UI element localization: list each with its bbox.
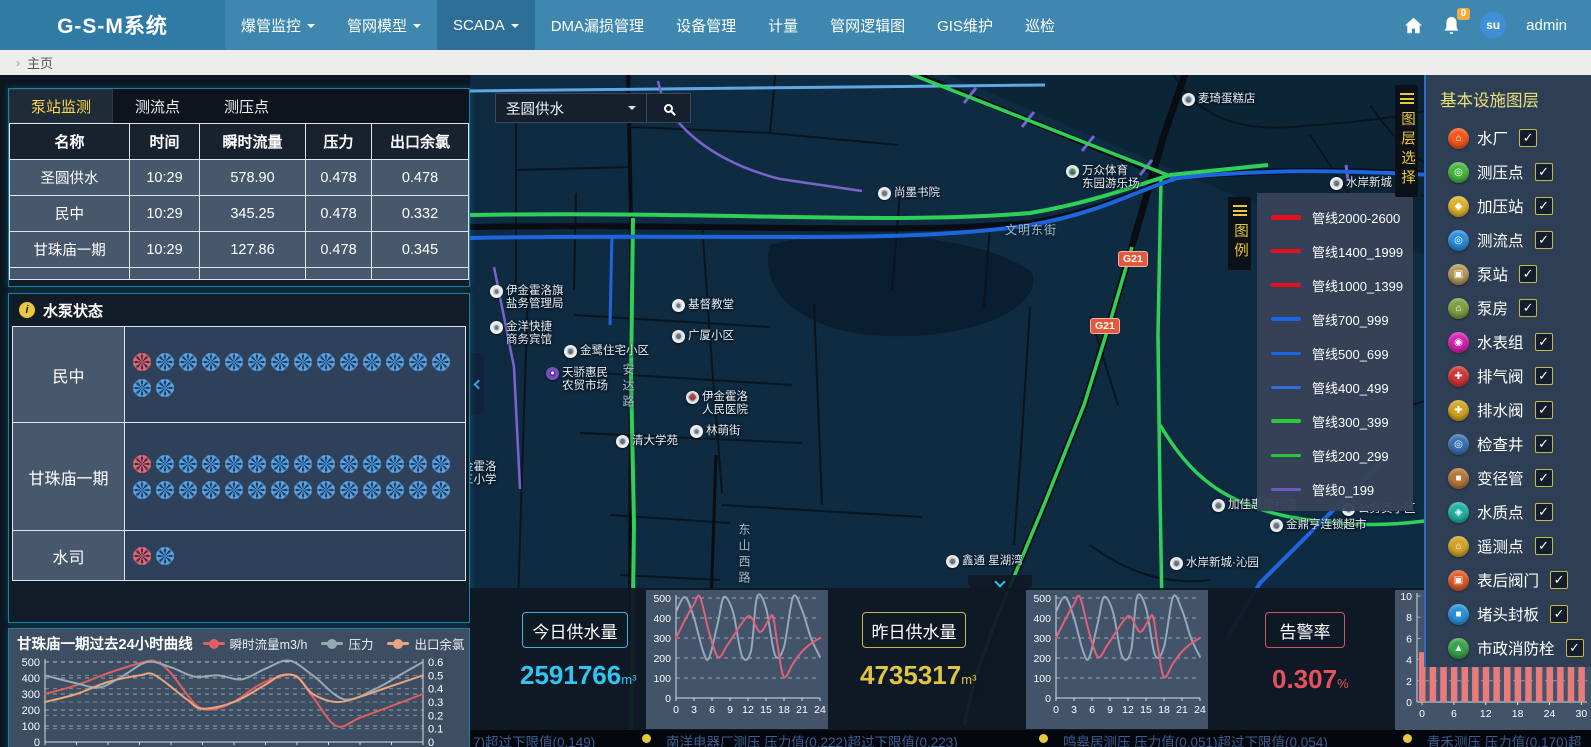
ticker-item: 鸣皋居测压 压力值(0.051)超过下限值(0.054) [1063, 731, 1328, 747]
pump-running-icon [386, 481, 404, 499]
svg-text:0.6: 0.6 [428, 657, 443, 669]
svg-text:21: 21 [1176, 704, 1188, 716]
column-header: 压力 [306, 124, 372, 160]
cell-chlorine: 0.478 [372, 160, 469, 196]
svg-text:18: 18 [1158, 704, 1170, 716]
pump-running-icon [156, 353, 174, 371]
cell-chlorine: 0.345 [372, 232, 469, 268]
pipeline-legend-panel: 管线2000-2600管线1400_1999管线1000_1399管线700_9… [1257, 193, 1413, 511]
svg-text:100: 100 [653, 673, 671, 685]
layer-item-13[interactable]: ▣表后阀门✓ [1426, 563, 1591, 597]
pump-running-icon [225, 481, 243, 499]
cell-name: 民中 [10, 196, 130, 232]
supply-summary-bar: 今日供水量 2591766m³ 010020030040050003691215… [470, 588, 1591, 730]
svg-text:30: 30 [1576, 708, 1588, 720]
app-logo[interactable]: G-S-M系统 [0, 0, 225, 50]
column-header: 出口余氯 [372, 124, 469, 160]
pump-running-icon [133, 481, 151, 499]
svg-text:0: 0 [428, 737, 434, 747]
tab-2[interactable]: 测压点 [202, 89, 291, 123]
layer-item-6[interactable]: ◉水表组✓ [1426, 325, 1591, 359]
nav-item-2[interactable]: SCADA [437, 0, 535, 50]
curve-legend-label: 压力 [348, 634, 373, 653]
layer-label: 排水阀 [1477, 399, 1524, 421]
cell-name: 甘珠庙一期 [10, 232, 130, 268]
svg-text:0: 0 [665, 693, 671, 705]
layer-checkbox[interactable]: ✓ [1535, 435, 1553, 453]
pump-alarm-icon [133, 353, 151, 371]
cell-time: 10:29 [130, 232, 200, 268]
breadcrumb: › 主页 [0, 50, 1591, 75]
pump-station-name: 甘珠庙一期 [13, 423, 125, 531]
legend-item: 管线2000-2600 [1271, 200, 1413, 234]
layer-checkbox[interactable]: ✓ [1535, 231, 1553, 249]
ticker-item: 7)超过下限值(0.149) [473, 731, 595, 747]
layer-checkbox[interactable]: ✓ [1550, 571, 1568, 589]
nav-item-7[interactable]: GIS维护 [921, 0, 1009, 50]
layer-checkbox[interactable]: ✓ [1535, 537, 1553, 555]
cell-empty [306, 268, 372, 280]
nav-item-label: SCADA [453, 17, 505, 34]
pump-running-icon [363, 455, 381, 473]
search-icon [664, 104, 673, 113]
pump-running-icon [156, 379, 174, 397]
layer-item-11[interactable]: ◈水质点✓ [1426, 495, 1591, 529]
collapse-left-panel-button[interactable] [470, 353, 484, 415]
cell-empty [130, 268, 200, 280]
legend-label: 管线0_199 [1312, 480, 1374, 499]
layer-toggle-label: 图层选择 [1399, 111, 1414, 189]
svg-text:3: 3 [691, 704, 697, 716]
pump-station-row: 民中 [13, 327, 466, 423]
pump-status-header: i 水泵状态 [9, 294, 469, 326]
pump-running-icon [225, 455, 243, 473]
notifications-button[interactable]: 0 [1443, 16, 1460, 35]
pump-running-icon [409, 455, 427, 473]
gsm-dashboard: G-S-M系统 爆管监控管网模型SCADADMA漏损管理设备管理计量管网逻辑图G… [0, 0, 1591, 747]
legend-label: 管线300_399 [1312, 412, 1389, 431]
pump-running-icon [156, 481, 174, 499]
chevron-left-icon [473, 379, 483, 389]
legend-swatch [1271, 249, 1301, 253]
chevron-down-icon [994, 576, 1005, 587]
pump-running-icon [363, 353, 381, 371]
svg-text:0.5: 0.5 [428, 670, 443, 682]
svg-text:21: 21 [796, 704, 808, 716]
search-select-value: 圣圆供水 [506, 98, 564, 119]
history-curve-chart: 010020030040050000.10.20.30.40.50.6 [9, 656, 469, 747]
svg-text:6: 6 [1406, 633, 1412, 645]
pump-running-icon [271, 481, 289, 499]
layer-checkbox[interactable]: ✓ [1535, 197, 1553, 215]
svg-text:15: 15 [1140, 704, 1152, 716]
today-supply-button[interactable]: 今日供水量 [522, 612, 628, 648]
svg-text:300: 300 [1033, 633, 1051, 645]
pump-running-icon [179, 455, 197, 473]
breadcrumb-arrow-icon: › [16, 56, 20, 70]
ticker-item: 青禾测压 压力值(0.170)超 [1427, 731, 1582, 747]
pump-running-icon [409, 481, 427, 499]
layer-checkbox[interactable]: ✓ [1566, 639, 1584, 657]
legend-label: 管线700_999 [1312, 310, 1389, 329]
layer-item-3[interactable]: ◎测流点✓ [1426, 223, 1591, 257]
caret-down-icon [511, 24, 519, 32]
pump-running-icon [386, 455, 404, 473]
alarm-rate-button[interactable]: 告警率 [1265, 612, 1345, 648]
pump-running-icon [294, 455, 312, 473]
tab-1[interactable]: 测流点 [113, 89, 202, 123]
svg-text:200: 200 [22, 705, 40, 717]
pump-running-icon [340, 353, 358, 371]
pump-station-row: 甘珠庙一期 [13, 423, 466, 531]
layer-label: 表后阀门 [1477, 569, 1539, 591]
svg-text:0.4: 0.4 [428, 684, 443, 696]
layer-label: 加压站 [1477, 195, 1524, 217]
layer-icon: ■ [1448, 468, 1469, 489]
layer-checkbox[interactable]: ✓ [1535, 333, 1553, 351]
pump-running-icon [340, 455, 358, 473]
layer-item-2[interactable]: ◆加压站✓ [1426, 189, 1591, 223]
avatar[interactable]: su [1480, 12, 1506, 38]
layer-icon: ◎ [1448, 162, 1469, 183]
layer-item-4[interactable]: ▣泵站✓ [1426, 257, 1591, 291]
today-supply-chart: 010020030040050003691215182124 [646, 590, 828, 729]
pump-running-icon [409, 353, 427, 371]
svg-text:24: 24 [1194, 704, 1206, 716]
caret-down-icon [307, 24, 315, 32]
layer-item-0[interactable]: ⌂水厂✓ [1426, 121, 1591, 155]
svg-text:400: 400 [653, 613, 671, 625]
svg-text:12: 12 [1122, 704, 1134, 716]
pump-fans [133, 455, 457, 499]
svg-text:0: 0 [1045, 693, 1051, 705]
layer-icon: ⌂ [1448, 128, 1469, 149]
cell-empty [10, 268, 130, 280]
column-header: 瞬时流量 [200, 124, 306, 160]
nav-item-8[interactable]: 巡检 [1009, 0, 1071, 50]
pump-fans-cell [125, 531, 466, 581]
curve-legend-marker [387, 642, 409, 645]
svg-text:6: 6 [1089, 704, 1095, 716]
legend-toggle-label: 图例 [1232, 223, 1247, 262]
svg-text:12: 12 [742, 704, 754, 716]
layer-label: 市政消防栓 [1477, 637, 1555, 659]
legend-swatch [1271, 352, 1301, 355]
legend-swatch [1271, 419, 1301, 423]
svg-text:300: 300 [653, 633, 671, 645]
svg-text:4: 4 [1406, 655, 1412, 667]
layer-label: 测流点 [1477, 229, 1524, 251]
svg-text:500: 500 [1033, 593, 1051, 605]
svg-text:0: 0 [673, 704, 679, 716]
layer-icon: ◈ [1448, 502, 1469, 523]
svg-text:18: 18 [778, 704, 790, 716]
alarm-rate-value: 0.307% [1272, 664, 1349, 695]
legend-item: 管线1000_1399 [1271, 268, 1413, 302]
ticker-dot-icon [1403, 734, 1412, 743]
layer-item-10[interactable]: ■变径管✓ [1426, 461, 1591, 495]
main-menu: 爆管监控管网模型SCADADMA漏损管理设备管理计量管网逻辑图GIS维护巡检 [225, 0, 1071, 50]
layer-item-14[interactable]: ■堵头封板✓ [1426, 597, 1591, 631]
svg-text:2: 2 [1406, 676, 1412, 688]
pump-running-icon [294, 481, 312, 499]
layer-item-8[interactable]: ✚排水阀✓ [1426, 393, 1591, 427]
legend-item: 管线500_699 [1271, 336, 1413, 370]
nav-item-label: 巡检 [1025, 15, 1055, 36]
svg-text:400: 400 [22, 673, 40, 685]
layer-label: 水质点 [1477, 501, 1524, 523]
monitor-tabs: 泵站监测测流点测压点 [9, 89, 469, 123]
menu-icon [1400, 93, 1414, 104]
curve-legend-label: 出口余氯 [414, 634, 464, 653]
svg-text:0.3: 0.3 [428, 697, 443, 709]
ticker-item: 南洋电器厂测压 压力值(0.222)超过下限值(0.223) [666, 731, 958, 747]
search-station-select[interactable]: 圣圆供水 [495, 93, 647, 123]
legend-label: 管线1400_1999 [1312, 242, 1403, 261]
svg-text:100: 100 [22, 721, 40, 733]
layer-label: 堵头封板 [1477, 603, 1539, 625]
svg-text:0: 0 [1406, 697, 1412, 709]
curve-legend-label: 瞬时流量m3/h [230, 634, 308, 653]
layer-checkbox[interactable]: ✓ [1519, 265, 1537, 283]
pump-running-icon [248, 455, 266, 473]
nav-item-0[interactable]: 爆管监控 [225, 0, 331, 50]
pump-running-icon [432, 353, 450, 371]
layer-checkbox[interactable]: ✓ [1550, 605, 1568, 623]
layer-icon: ◉ [1448, 332, 1469, 353]
svg-text:8: 8 [1406, 612, 1412, 624]
pump-running-icon [225, 353, 243, 371]
layer-icon: ⌂ [1448, 536, 1469, 557]
svg-text:9: 9 [727, 704, 733, 716]
legend-swatch [1271, 488, 1301, 491]
curve-legend-item: 压力 [321, 634, 373, 653]
layer-icon: ■ [1448, 604, 1469, 625]
layer-label: 泵房 [1477, 297, 1508, 319]
svg-text:12: 12 [1480, 708, 1492, 720]
layer-select-toggle[interactable]: 图层选择 [1395, 85, 1418, 197]
legend-label: 管线400_499 [1312, 378, 1389, 397]
layer-label: 测压点 [1477, 161, 1524, 183]
pump-running-icon [248, 353, 266, 371]
layer-checkbox[interactable]: ✓ [1519, 299, 1537, 317]
pump-station-name: 民中 [13, 327, 125, 423]
nav-item-label: 计量 [768, 15, 798, 36]
legend-label: 管线2000-2600 [1312, 208, 1400, 227]
layer-item-15[interactable]: ▲市政消防栓✓ [1426, 631, 1591, 665]
svg-text:300: 300 [22, 689, 40, 701]
history-curve-panel: 甘珠庙一期过去24小时曲线 瞬时流量m3/h压力出口余氯 01002003004… [8, 628, 470, 747]
base-layers-title: 基本设施图层 [1426, 75, 1591, 121]
curve-legend-item: 瞬时流量m3/h [203, 634, 308, 653]
pump-alarm-icon [133, 547, 151, 565]
layer-item-9[interactable]: ◎检查井✓ [1426, 427, 1591, 461]
pump-status-panel: i 水泵状态 民中甘珠庙一期水司 [8, 293, 470, 623]
layer-label: 水表组 [1477, 331, 1524, 353]
pump-running-icon [202, 353, 220, 371]
nav-right: 0 su admin [1404, 0, 1591, 50]
info-icon: i [19, 302, 35, 318]
layer-label: 遥测点 [1477, 535, 1524, 557]
pump-running-icon [340, 481, 358, 499]
history-curve-legend: 瞬时流量m3/h压力出口余氯 [203, 634, 465, 653]
nav-item-label: 爆管监控 [241, 15, 301, 36]
pump-running-icon [363, 481, 381, 499]
pump-running-icon [179, 353, 197, 371]
legend-swatch [1271, 317, 1301, 321]
layer-checkbox[interactable]: ✓ [1519, 129, 1537, 147]
column-header: 名称 [10, 124, 130, 160]
pump-running-icon [202, 455, 220, 473]
ticker-dot-icon [1039, 734, 1048, 743]
svg-text:10: 10 [1400, 591, 1412, 603]
svg-text:200: 200 [653, 653, 671, 665]
pump-running-icon [432, 455, 450, 473]
pump-status-title: 水泵状态 [43, 300, 103, 321]
legend-label: 管线500_699 [1312, 344, 1389, 363]
layer-icon: ⌂ [1448, 298, 1469, 319]
nav-item-3[interactable]: DMA漏损管理 [535, 0, 660, 50]
breadcrumb-page[interactable]: 主页 [27, 53, 53, 72]
layer-checkbox[interactable]: ✓ [1535, 469, 1553, 487]
layer-checkbox[interactable]: ✓ [1535, 401, 1553, 419]
legend-swatch [1271, 215, 1301, 220]
table-row[interactable]: 甘珠庙一期10:29127.860.4780.345 [10, 232, 469, 268]
table-row[interactable]: 圣圆供水10:29578.900.4780.478 [10, 160, 469, 196]
cell-pressure: 0.478 [306, 232, 372, 268]
home-button[interactable] [1404, 17, 1423, 34]
layer-item-5[interactable]: ⌂泵房✓ [1426, 291, 1591, 325]
cell-empty [372, 268, 469, 280]
layer-label: 水厂 [1477, 127, 1508, 149]
legend-item: 管线300_399 [1271, 404, 1413, 438]
alarm-ticker: 7)超过下限值(0.149)南洋电器厂测压 压力值(0.222)超过下限值(0.… [470, 730, 1591, 747]
layer-item-1[interactable]: ◎测压点✓ [1426, 155, 1591, 189]
table-row[interactable]: 民中10:29345.250.4780.332 [10, 196, 469, 232]
cell-flow: 127.86 [200, 232, 306, 268]
cell-chlorine: 0.332 [372, 196, 469, 232]
layer-icon: ◎ [1448, 230, 1469, 251]
legend-swatch [1271, 386, 1301, 389]
base-layers-list: ⌂水厂✓◎测压点✓◆加压站✓◎测流点✓▣泵站✓⌂泵房✓◉水表组✓✚排气阀✓✚排水… [1426, 121, 1591, 665]
pump-running-icon [271, 455, 289, 473]
curve-legend-marker [321, 642, 343, 645]
svg-text:500: 500 [653, 593, 671, 605]
cell-flow: 578.90 [200, 160, 306, 196]
layer-checkbox[interactable]: ✓ [1535, 163, 1553, 181]
nav-item-label: GIS维护 [937, 15, 993, 36]
nav-item-label: DMA漏损管理 [551, 15, 644, 36]
pump-status-table: 民中甘珠庙一期水司 [12, 326, 466, 581]
layer-icon: ✚ [1448, 400, 1469, 421]
pump-fans-cell [125, 327, 466, 423]
nav-item-5[interactable]: 计量 [752, 0, 814, 50]
curve-legend-marker [203, 642, 225, 645]
svg-text:9: 9 [1107, 704, 1113, 716]
cell-pressure: 0.478 [306, 160, 372, 196]
layer-icon: ▲ [1448, 638, 1469, 659]
svg-text:0.2: 0.2 [428, 710, 443, 722]
pump-running-icon [317, 455, 335, 473]
cell-flow: 345.25 [200, 196, 306, 232]
pump-fans-cell [125, 423, 466, 531]
yesterday-supply-chart: 010020030040050003691215182124 [1026, 590, 1208, 729]
pump-station-name: 水司 [13, 531, 125, 581]
tab-0[interactable]: 泵站监测 [9, 89, 113, 123]
legend-item: 管线700_999 [1271, 302, 1413, 336]
monitor-table: 名称时间瞬时流量压力出口余氯 圣圆供水10:29578.900.4780.478… [9, 123, 469, 280]
svg-text:0.1: 0.1 [428, 724, 443, 736]
pump-fans [133, 547, 457, 565]
pump-running-icon [386, 353, 404, 371]
legend-item: 管线1400_1999 [1271, 234, 1413, 268]
layer-icon: ▣ [1448, 570, 1469, 591]
layer-label: 泵站 [1477, 263, 1508, 285]
yesterday-supply-value: 4735317m³ [860, 660, 976, 691]
pump-running-icon [202, 481, 220, 499]
legend-item: 管线200_299 [1271, 438, 1413, 472]
nav-item-6[interactable]: 管网逻辑图 [814, 0, 921, 50]
legend-label: 管线1000_1399 [1312, 276, 1403, 295]
username[interactable]: admin [1526, 17, 1567, 34]
legend-swatch [1271, 283, 1301, 287]
nav-item-1[interactable]: 管网模型 [331, 0, 437, 50]
svg-text:24: 24 [1544, 708, 1556, 720]
chevron-down-icon [628, 106, 636, 114]
layer-icon: ✚ [1448, 366, 1469, 387]
cell-name: 圣圆供水 [10, 160, 130, 196]
pump-running-icon [156, 547, 174, 565]
layer-item-7[interactable]: ✚排气阀✓ [1426, 359, 1591, 393]
pump-station-row: 水司 [13, 531, 466, 581]
layer-checkbox[interactable]: ✓ [1535, 503, 1553, 521]
legend-toggle[interactable]: 图例 [1228, 197, 1251, 270]
layer-label: 变径管 [1477, 467, 1524, 489]
pump-running-icon [317, 481, 335, 499]
layer-item-12[interactable]: ⌂遥测点✓ [1426, 529, 1591, 563]
pump-running-icon [248, 481, 266, 499]
cell-time: 10:29 [130, 160, 200, 196]
cell-time: 10:29 [130, 196, 200, 232]
svg-text:6: 6 [1451, 708, 1457, 720]
legend-swatch [1271, 454, 1301, 457]
layer-checkbox[interactable]: ✓ [1535, 367, 1553, 385]
search-button[interactable] [647, 93, 691, 123]
pump-running-icon [294, 353, 312, 371]
layer-icon: ◆ [1448, 196, 1469, 217]
nav-item-label: 管网模型 [347, 15, 407, 36]
svg-text:400: 400 [1033, 613, 1051, 625]
yesterday-supply-button[interactable]: 昨日供水量 [862, 612, 966, 648]
history-curve-title: 甘珠庙一期过去24小时曲线 [17, 633, 193, 654]
curve-legend-item: 出口余氯 [387, 634, 464, 653]
cell-pressure: 0.478 [306, 196, 372, 232]
today-supply-value: 2591766m³ [520, 660, 636, 691]
svg-text:0: 0 [1419, 708, 1425, 720]
svg-text:500: 500 [22, 657, 40, 669]
nav-item-4[interactable]: 设备管理 [660, 0, 752, 50]
home-icon [1404, 17, 1423, 34]
svg-text:15: 15 [760, 704, 772, 716]
pump-running-icon [133, 379, 151, 397]
nav-item-label: 管网逻辑图 [830, 15, 905, 36]
svg-text:200: 200 [1033, 653, 1051, 665]
pump-fans [133, 353, 457, 397]
pump-running-icon [432, 481, 450, 499]
table-row-partial [10, 268, 469, 280]
layer-label: 排气阀 [1477, 365, 1524, 387]
pump-running-icon [317, 353, 335, 371]
